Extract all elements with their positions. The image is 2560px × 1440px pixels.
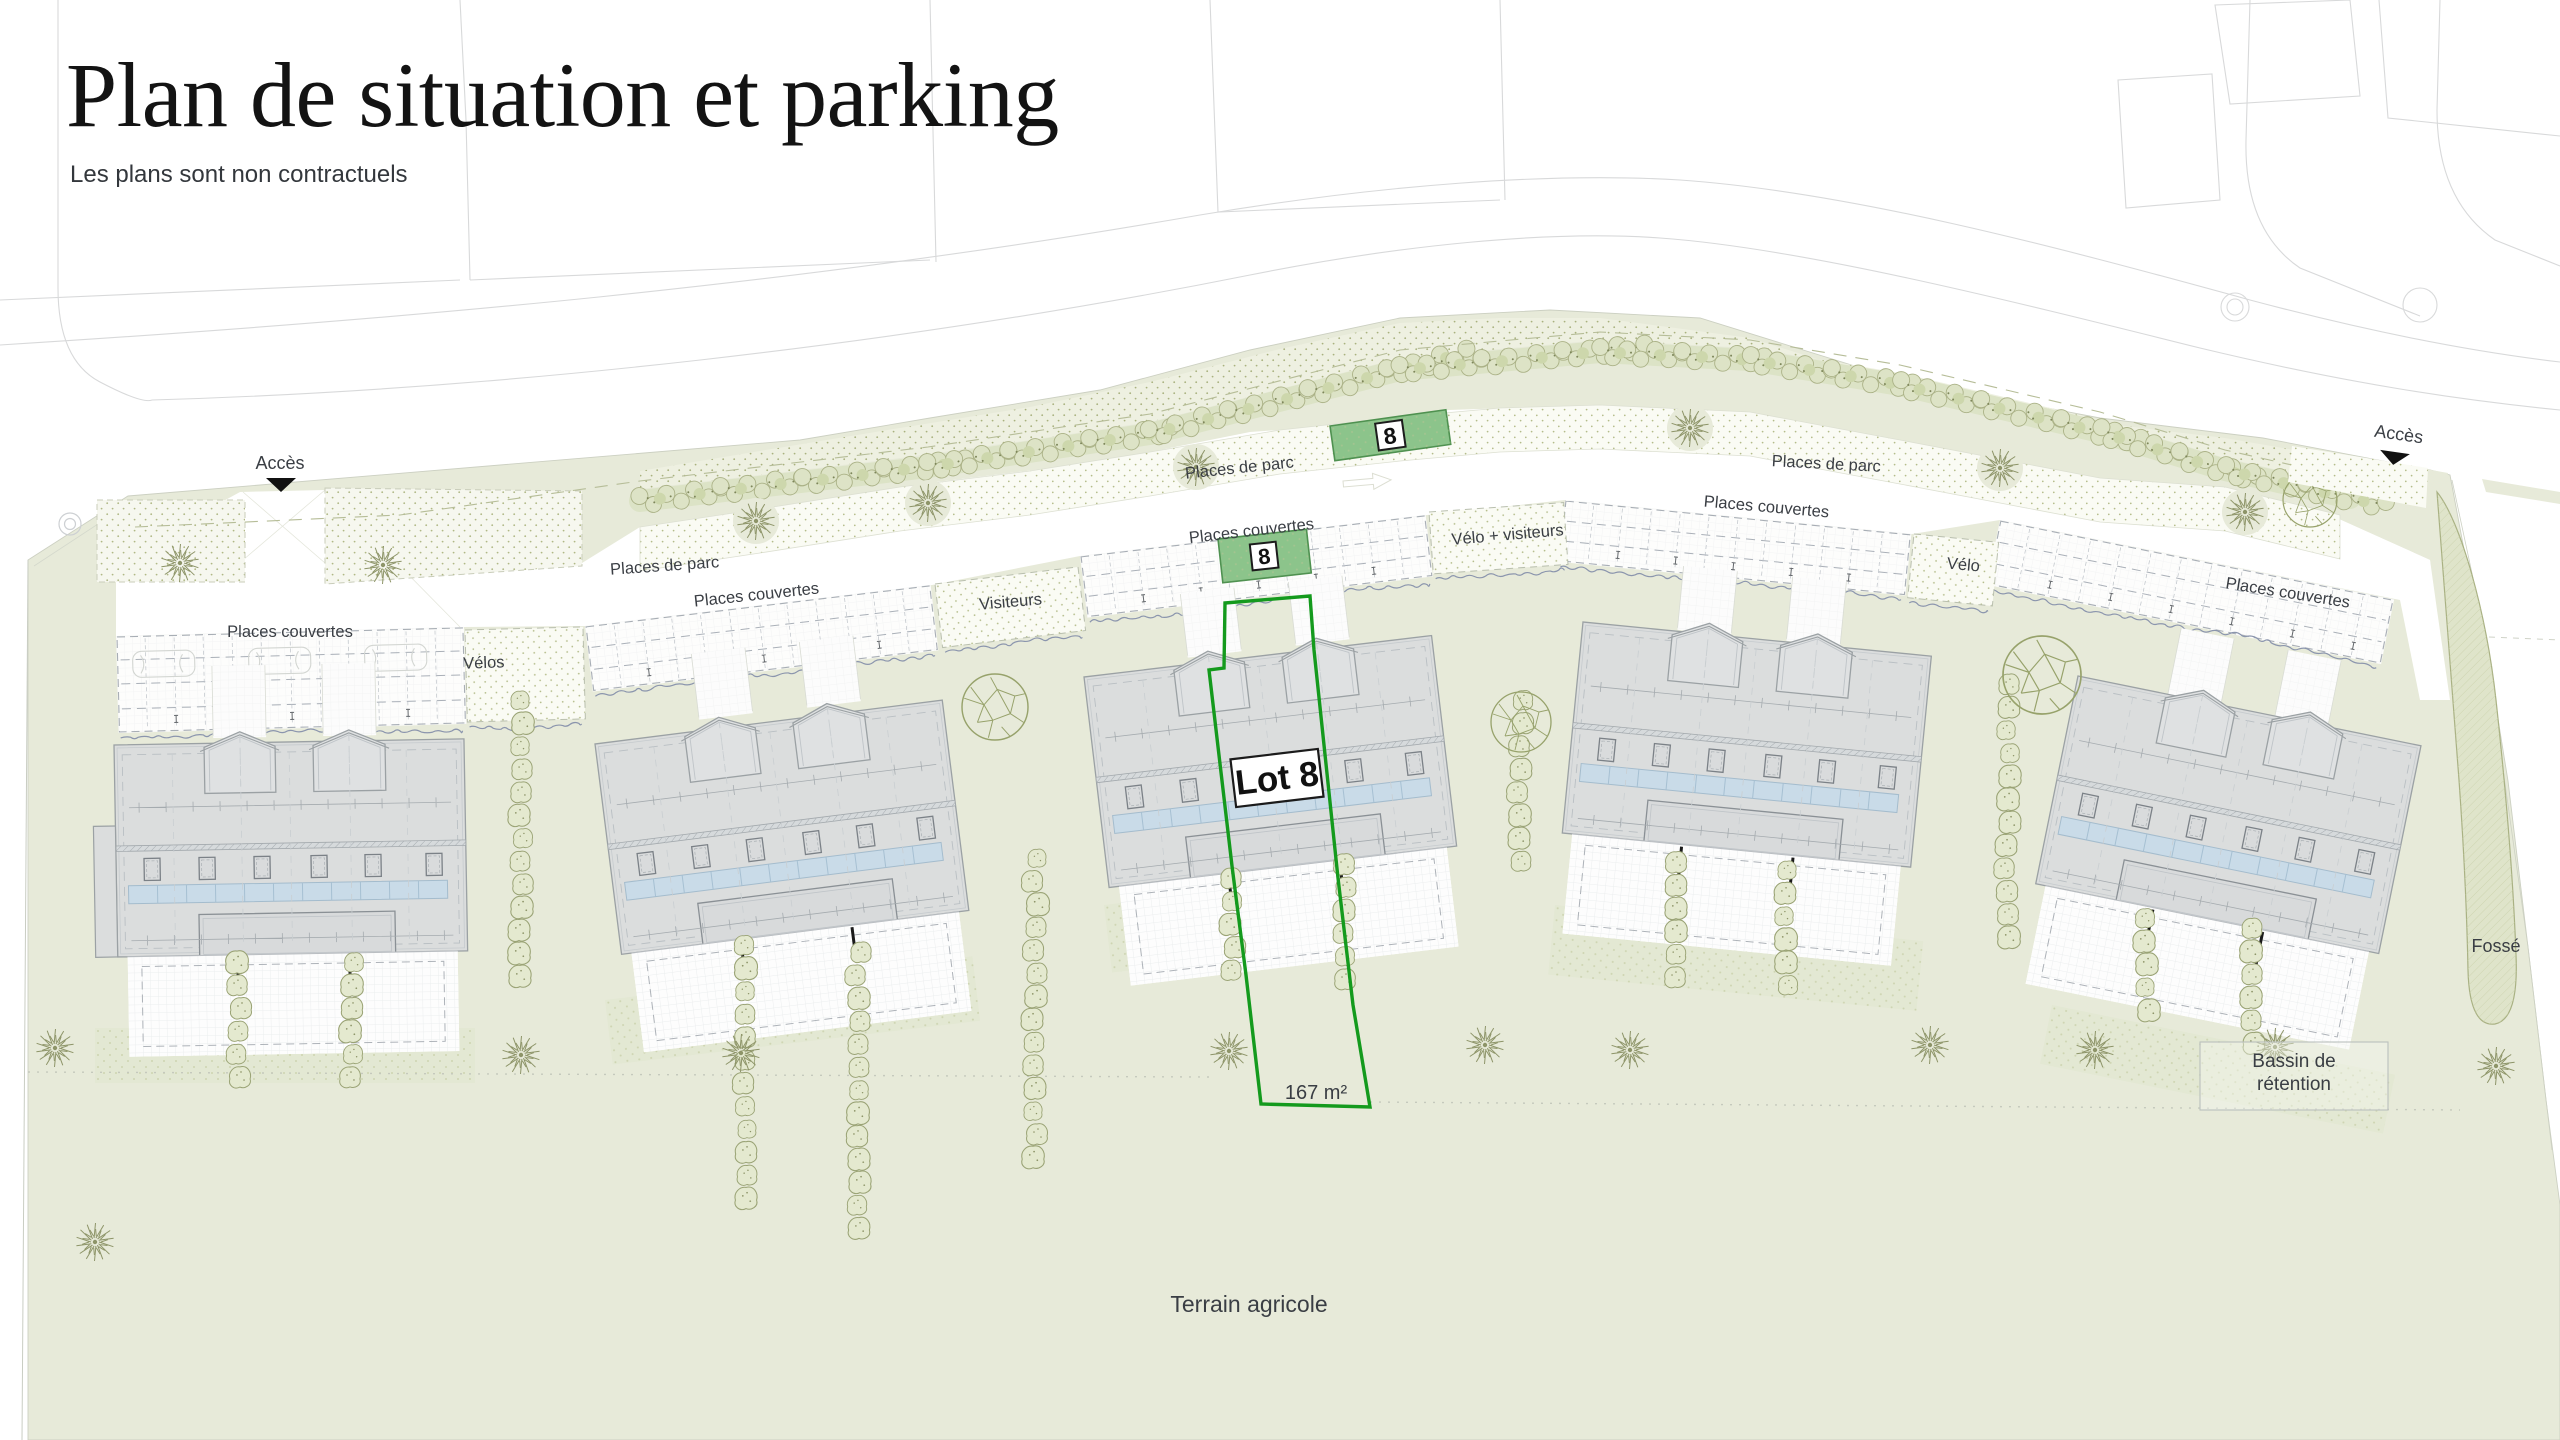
svg-text:167 m²: 167 m² — [1285, 1082, 1348, 1104]
svg-text:Plan de situation et parking: Plan de situation et parking — [66, 44, 1059, 146]
svg-text:Accès: Accès — [255, 453, 304, 473]
svg-text:Vélo: Vélo — [1946, 555, 1980, 576]
svg-text:Fossé: Fossé — [2471, 936, 2520, 956]
svg-text:Les plans sont non contractuel: Les plans sont non contractuels — [70, 161, 408, 188]
svg-text:Bassin de: Bassin de — [2252, 1051, 2335, 1072]
svg-text:Terrain agricole: Terrain agricole — [1170, 1291, 1327, 1317]
svg-text:rétention: rétention — [2257, 1074, 2331, 1095]
svg-text:Vélos: Vélos — [463, 653, 505, 672]
svg-text:Places couvertes: Places couvertes — [227, 623, 353, 641]
